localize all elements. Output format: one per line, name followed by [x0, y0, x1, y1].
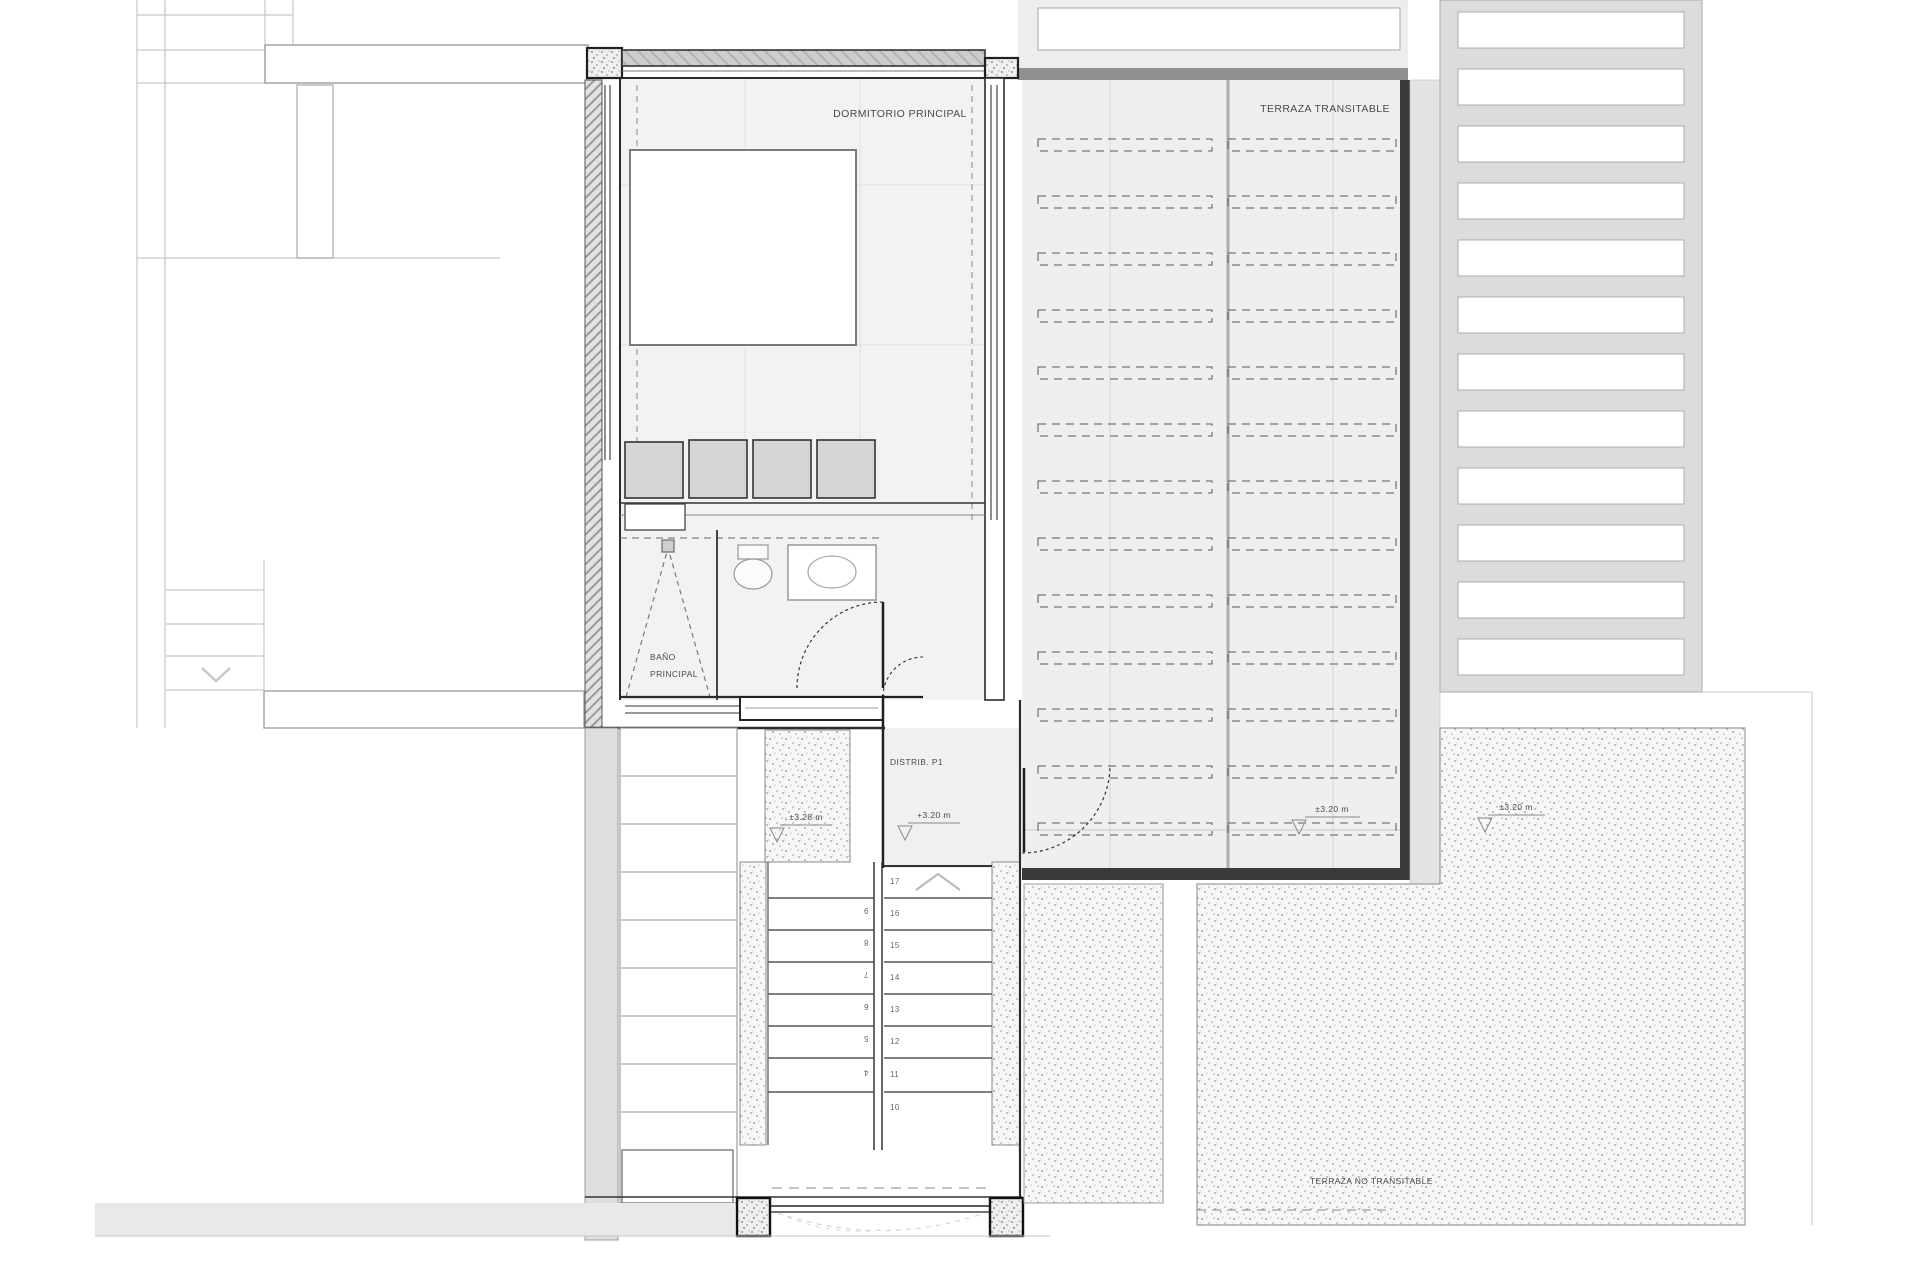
bedroom-west-wall: [585, 80, 602, 730]
adjacent-wall-segment: [297, 85, 333, 258]
svg-text:16: 16: [890, 909, 900, 918]
stair-east-strip: [992, 862, 1020, 1145]
bed: [630, 150, 856, 345]
bathroom-label-line1: BAÑO: [650, 652, 676, 662]
stair-landing: [765, 730, 850, 862]
toilet: [734, 545, 772, 589]
terrace-south-parapet: [1022, 868, 1410, 880]
gravel-area-inner: [1024, 884, 1163, 1203]
adjacent-stair-upper: [166, 590, 264, 690]
floorplan-canvas: DORMITORIO PRINCIPAL BAÑO PRINCIPAL: [0, 0, 1920, 1280]
bedroom-east-wall: [985, 78, 1004, 700]
hall-floor: [885, 728, 1020, 868]
svg-text:15: 15: [890, 941, 900, 950]
floorplan-svg: DORMITORIO PRINCIPAL BAÑO PRINCIPAL: [0, 0, 1920, 1280]
terrace-floor: [1022, 80, 1400, 868]
hall-level-text: +3.20 m: [917, 810, 951, 820]
svg-text:10: 10: [890, 1103, 900, 1112]
terrace-top-edge: [1018, 68, 1408, 80]
non-walkable-level-text: ±3.20 m: [1499, 802, 1532, 812]
svg-text:5: 5: [863, 1034, 868, 1043]
svg-text:9: 9: [863, 906, 868, 915]
svg-text:14: 14: [890, 973, 900, 982]
svg-text:13: 13: [890, 1005, 900, 1014]
bathroom-label-line2: PRINCIPAL: [650, 669, 698, 679]
adjacent-roof-band: [265, 45, 588, 83]
ground-strip: [95, 1203, 735, 1236]
column-top-left: [587, 48, 622, 78]
hall-label: DISTRIB. P1: [890, 757, 943, 767]
bedroom-label: DORMITORIO PRINCIPAL: [833, 108, 967, 120]
south-window-glazing: [625, 706, 740, 713]
adjacent-unit-outline: [137, 0, 500, 728]
chevron-down-icon: [202, 668, 230, 681]
party-wall-strip: [585, 728, 618, 1240]
sink: [788, 545, 876, 600]
vanity-shelf: [625, 504, 685, 530]
svg-text:8: 8: [863, 938, 868, 947]
svg-text:17: 17: [890, 877, 900, 886]
terrace-walkable-label: TERRAZA TRANSITABLE: [1260, 103, 1390, 115]
adjacent-stair-void: [620, 728, 737, 1203]
stair-treads: [768, 898, 992, 1092]
terrace-level-text: ±3.20 m: [1315, 804, 1348, 814]
svg-text:6: 6: [863, 1002, 868, 1011]
stair-west-strip: [740, 862, 766, 1145]
adjacent-band-lower: [264, 691, 584, 728]
chevron-up-icon: [916, 874, 960, 890]
bedroom-north-wall: [622, 50, 985, 66]
louver-band: [1440, 0, 1702, 692]
terrace-east-parapet: [1400, 80, 1410, 880]
column-top-right: [985, 58, 1018, 78]
svg-text:4: 4: [863, 1068, 868, 1077]
terrace-non-walkable-label: TERRAZA NO TRANSITABLE: [1310, 1176, 1433, 1186]
upper-terrace-slab: [1038, 8, 1400, 50]
landing-level-text: ±3.28 m: [789, 812, 822, 822]
svg-text:11: 11: [890, 1070, 899, 1079]
svg-text:7: 7: [863, 970, 868, 979]
stair-step-numbers-down: 9 8 7 6 5 4: [863, 906, 868, 1077]
svg-text:12: 12: [890, 1037, 900, 1046]
west-window-glazing: [605, 85, 610, 460]
